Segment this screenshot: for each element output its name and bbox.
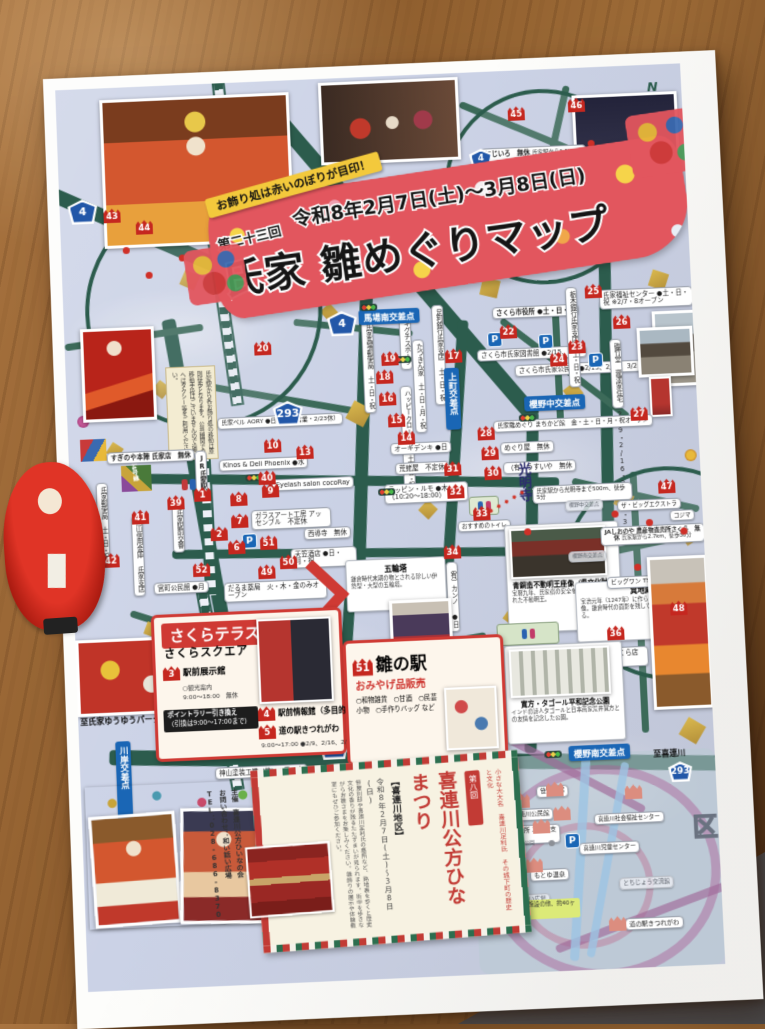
venue-label-tatsukin: たつきん家 土・日・月・祝 xyxy=(412,339,429,433)
to-kitsuregawa-direction: 至喜連川 xyxy=(653,747,686,760)
parking-icon: P xyxy=(588,352,604,368)
inset-nakacho-label: 櫻野中交差点 xyxy=(565,499,604,511)
intersection-sakuranonaka: 櫻野中交差点 xyxy=(524,394,586,412)
map-canvas: 国道4号線 国道293号線 N 氏家 今宮神社 11世紀の創建と伝えられる氏家の… xyxy=(55,63,725,992)
parking-icon: P xyxy=(538,334,554,350)
festival-title: 喜連川公方ひなまつり xyxy=(405,770,471,926)
doll-hair xyxy=(0,459,110,634)
tagore-infobox: 寛方・タゴール平和記念公園 インドの詩人タゴールと日本画家荒井寛方との友情を記念… xyxy=(503,641,626,745)
gorinto-desc: 鎌倉時代末期の物とされる珍しい伊勢型・大型の五輪塔。 xyxy=(351,573,442,591)
terrace-item3: 3駅前展示館 xyxy=(163,663,226,681)
venue-label-isotake: 磯竹堂 瀧澤家住宅 2/9・2/16・2/23・3/2 xyxy=(609,339,625,409)
kitsuregawa-festival-box: 小さな大大名 喜連川足利氏 その城下町の歴史と文化 第八回 喜連川公方ひなまつり… xyxy=(250,750,532,953)
venue-label-machikado: 氏家雛めぐり まちかど館 金・土・日・月・祝オープン xyxy=(493,414,653,433)
map-marker: 8 xyxy=(230,491,248,507)
intersection-sakuranominami: 櫻野南交差点 xyxy=(568,743,630,761)
venue-label-fukushi-center: 氏家福祉センター ●土・日・祝 ※2/7・8オープン xyxy=(599,286,693,310)
map-marker: 27 xyxy=(630,405,648,421)
photo-hina-doll-left xyxy=(88,811,183,929)
venue-label-babapost: 氏家馬場郵便局 土・日・祝 xyxy=(361,320,377,414)
venue-label-meguriya: めぐり屋 無休 xyxy=(500,440,554,455)
confetti xyxy=(679,717,706,745)
map-marker: 10 xyxy=(264,437,282,453)
traffic-light-icon xyxy=(544,750,561,758)
venue-label-suginoya: すぎのや本陣 氏家店 無休 xyxy=(106,449,195,465)
intersection-kamicho: 上町交差点 xyxy=(444,368,462,430)
photo-souvenirs xyxy=(444,686,499,751)
photo-tagore-park xyxy=(509,645,612,698)
inset-minamicho-label: 櫻野南交差点 xyxy=(568,550,607,562)
station-label: JR氏家駅 xyxy=(194,450,208,494)
toilet-label: おすすめのトイレ xyxy=(458,519,511,533)
kitsuregawa-district-watermark: 喜連川地区 xyxy=(684,811,725,965)
station-icon xyxy=(181,479,195,491)
map-marker: 15 xyxy=(388,412,406,428)
hina-station-box: 51雛の駅 おみやげ品販売 ○和物雑貨 ○甘酒 ○民芸小物 ○手作りバッグ など xyxy=(342,634,508,766)
map-marker: 17 xyxy=(445,348,463,364)
hina-station-title: 雛の駅 xyxy=(375,653,427,675)
kojima-label: コジマ xyxy=(669,509,694,522)
floral-decoration xyxy=(624,106,703,179)
map-marker: 41 xyxy=(132,509,150,525)
marker-51: 51 xyxy=(352,657,373,676)
venue-label-saidoji: 西導寺 無休 xyxy=(304,526,352,541)
tagore-park-label-icons xyxy=(496,621,559,646)
photo-takizawa-house xyxy=(636,326,694,378)
map-marker: 25 xyxy=(584,283,602,299)
map-marker: 26 xyxy=(613,313,631,329)
photo-red-kimono-doll xyxy=(80,326,157,423)
map-marker: 6 xyxy=(228,539,246,555)
walking-notice: 氏家駅から各お飾り処の移動は原則徒歩となります。公共機関での移動手段はございませ… xyxy=(165,365,219,461)
terrace-item3-label: 駅前展示館 xyxy=(183,666,226,678)
photo-orange-kimono-doll xyxy=(647,555,715,710)
festival-intro: 小さな大大名 喜連川足利氏 その城下町の歴史と文化 xyxy=(483,768,513,917)
photo-hina-poster xyxy=(256,616,334,704)
sakura-terrace-box: さくらテラス さくらスクエア 3駅前展示館 ○観光案内 9:00～18:00 無… xyxy=(151,607,348,762)
map-marker: 19 xyxy=(381,350,399,366)
map-marker: 40 xyxy=(258,469,276,485)
floral-decoration xyxy=(182,243,249,307)
rally-exchange-bar: ポイントラリー引き換え（引換は9:00～17:00まで） xyxy=(163,706,258,732)
terrace-subtitle: さくらスクエア xyxy=(164,642,249,662)
traffic-light-icon xyxy=(360,304,377,312)
map-marker: 7 xyxy=(231,513,249,529)
map-marker: 28 xyxy=(477,425,495,441)
map-marker: 14 xyxy=(398,429,416,445)
marker-3: 3 xyxy=(163,665,181,681)
traffic-light-icon xyxy=(519,414,536,422)
terrace-item3-hours: 9:00～18:00 無休 xyxy=(183,690,238,701)
male-icon xyxy=(521,629,526,639)
map-marker: 49 xyxy=(258,563,276,579)
festival-edition: 第八回 xyxy=(465,770,484,826)
hina-station-header: 51雛の駅 xyxy=(352,648,427,676)
map-marker: 16 xyxy=(379,390,397,406)
venue-label-cocoray: Eyelash salon cocoRay xyxy=(272,476,354,492)
hina-banner-poster xyxy=(649,376,673,417)
hina-station-items: ○和物雑貨 ○甘酒 ○民芸小物 ○手作りバッグ など xyxy=(356,692,441,716)
route4-number: 4 xyxy=(338,317,346,330)
route293-number: 293 xyxy=(276,406,299,420)
map-marker: 51 xyxy=(260,534,278,550)
map-marker: 52 xyxy=(193,561,211,577)
venue-label-koban: 氏家駅前交番 xyxy=(172,505,186,553)
marker-4: 4 xyxy=(258,705,276,721)
doll-sash xyxy=(48,554,66,588)
map-marker: 29 xyxy=(481,445,499,461)
photo-hina-dolls-display xyxy=(318,77,461,166)
marker-5: 5 xyxy=(258,724,276,740)
venue-label-karasuyama-bank: 烏山信用金庫 氏家支店 xyxy=(131,515,147,597)
traffic-light-icon xyxy=(378,488,395,496)
venue-label-ebiya: 荒蛯屋 不定休 xyxy=(395,461,449,476)
district-label-tochijo: とちじょう交流館 xyxy=(619,875,674,889)
station-figure-icon xyxy=(189,479,195,490)
map-marker: 39 xyxy=(167,494,185,510)
venue-label-phoenix: Kinos & Deli Phoenix ●水 xyxy=(219,456,309,472)
route4-number: 4 xyxy=(78,205,86,218)
flower-speck xyxy=(684,449,697,461)
route293-number: 293 xyxy=(671,766,690,777)
doll-base xyxy=(43,617,78,635)
hina-station-subtitle: おみやげ品販売 xyxy=(355,675,426,693)
parking-icon: P xyxy=(564,833,580,849)
map-marker: 30 xyxy=(484,464,502,480)
map-marker: 13 xyxy=(296,444,314,460)
photo-tiered-hina-display xyxy=(245,841,335,919)
map-marker: 18 xyxy=(376,368,394,384)
rally-note: （引換は9:00～17:00まで） xyxy=(168,717,251,728)
station-figure-icon xyxy=(181,479,187,490)
photo-red-hair-doll xyxy=(0,459,110,634)
female-icon xyxy=(529,629,534,639)
festival-map-flyer: 国道4号線 国道293号線 N 氏家 今宮神社 11世紀の創建と伝えられる氏家の… xyxy=(43,50,764,1029)
terrace-item5-label: 道の駅きつれがわ xyxy=(279,723,340,735)
